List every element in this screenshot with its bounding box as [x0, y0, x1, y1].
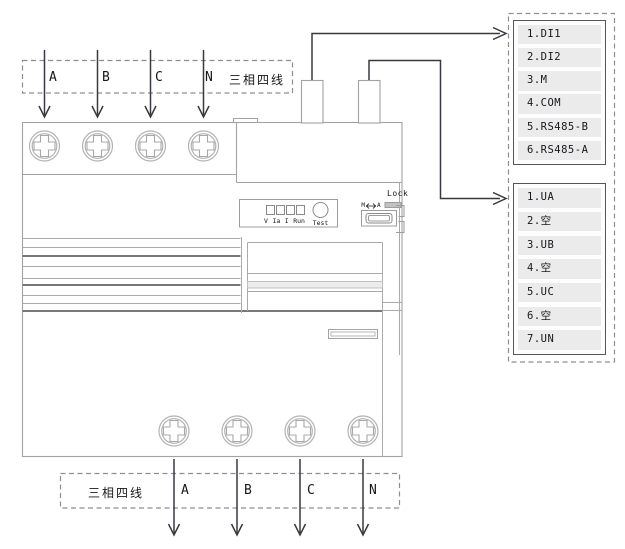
phase-label-top-c: C [155, 70, 163, 85]
voltage-terminal-block: 1.UA 2.空 3.UB 4.空 5.UC 6.空 7.UN [513, 183, 606, 355]
terminal-row: 5.RS485-B [518, 118, 601, 138]
led-label-i: I [285, 217, 289, 225]
mode-switch-label: M A [360, 202, 382, 209]
top-tab [234, 119, 258, 123]
screw-top-b [83, 131, 113, 161]
led-label-ia: Ia [272, 217, 280, 225]
screw-top-c [136, 131, 166, 161]
terminal-row: 6.RS485-A [518, 141, 601, 161]
terminal-row: 1.UA [518, 188, 601, 208]
screw-bottom-n [348, 416, 378, 446]
terminal-row: 2.DI2 [518, 48, 601, 68]
phase-label-bottom-c: C [307, 483, 315, 498]
screw-bottom-b [222, 416, 252, 446]
screw-top-n [189, 131, 219, 161]
signal-leader-wire [312, 28, 506, 81]
led-labels: V Ia I Run [264, 217, 305, 225]
terminal-row: 3.M [518, 71, 601, 91]
phase-label-top-n: N [205, 70, 213, 85]
phase-label-top-a: A [49, 70, 57, 85]
terminal-row: 5.UC [518, 283, 601, 303]
phase-label-bottom-n: N [369, 483, 377, 498]
terminal-row: 4.COM [518, 94, 601, 114]
screw-top-a [30, 131, 60, 161]
terminal-row: 6.空 [518, 307, 601, 327]
terminal-row: 2.空 [518, 212, 601, 232]
phase-label-bottom-a: A [181, 483, 189, 498]
led-label-run: Run [293, 217, 305, 225]
mode-auto-label: A [377, 202, 381, 209]
system-label-bottom: 三相四线 [88, 484, 144, 501]
screw-bottom-a [159, 416, 189, 446]
double-arrow-icon [366, 203, 376, 209]
system-label-top: 三相四线 [229, 71, 285, 88]
mode-manual-label: M [361, 202, 365, 209]
terminal-row: 1.DI1 [518, 25, 601, 45]
bottom-wiring-label-box: 三相四线 A B C N [60, 473, 400, 508]
phase-label-bottom-b: B [244, 483, 252, 498]
top-wiring-label-box: A B C N 三相四线 [22, 60, 293, 93]
terminal-row: 3.UB [518, 236, 601, 256]
voltage-connector [359, 81, 381, 124]
phase-label-top-b: B [102, 70, 110, 85]
terminal-row: 4.空 [518, 259, 601, 279]
lock-label: Lock [387, 189, 408, 198]
test-button-label: Test [310, 219, 331, 227]
signal-terminal-block: 1.DI1 2.DI2 3.M 4.COM 5.RS485-B 6.RS485-… [513, 20, 606, 165]
signal-connector [302, 81, 324, 124]
screw-bottom-c [285, 416, 315, 446]
led-label-v: V [264, 217, 268, 225]
wiring-diagram: A B C N 三相四线 三相四线 A B C N 1.DI1 2.DI2 3.… [0, 0, 625, 549]
terminal-row: 7.UN [518, 330, 601, 350]
